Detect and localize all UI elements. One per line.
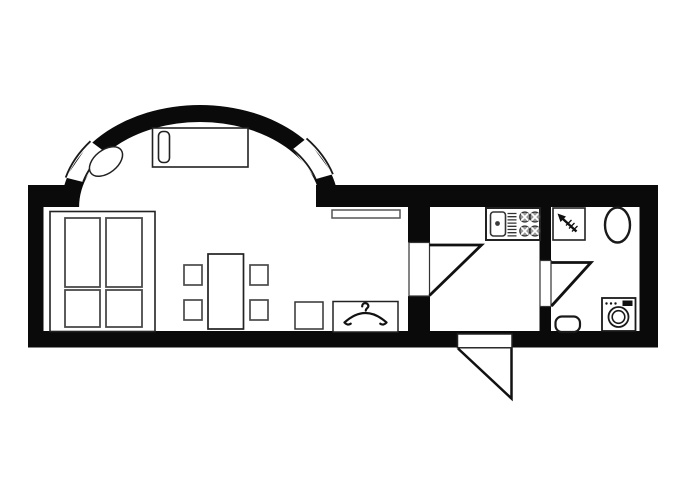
- basin: [556, 317, 581, 333]
- wardrobe-panel-bottom-right: [106, 290, 142, 327]
- chair-bottom-right: [250, 300, 268, 320]
- chair-top-right: [250, 265, 268, 285]
- wall-bath-partition-upper: [540, 205, 552, 261]
- toilet: [605, 208, 630, 243]
- wall-right: [640, 185, 659, 348]
- dining-table: [208, 254, 244, 329]
- wall-kitchen-partition-lower: [408, 296, 430, 332]
- entry-threshold: [458, 334, 513, 348]
- wardrobe-panel-bottom-left: [65, 290, 100, 327]
- floor-plan-drawing: [0, 0, 700, 500]
- wall-shelf: [332, 210, 400, 218]
- chair-top-left: [184, 265, 202, 285]
- sink-tap: [495, 221, 500, 226]
- kitchen-door-leaf: [430, 245, 482, 296]
- wardrobe-panel-top-right: [106, 218, 142, 287]
- wardrobe-panel-top-left: [65, 218, 100, 287]
- bath-door-leaf: [552, 263, 592, 307]
- wall-top-right: [316, 185, 658, 207]
- wall-kitchen-partition-upper: [408, 205, 430, 243]
- wall-top-left: [28, 185, 78, 207]
- washer-display: [623, 301, 633, 307]
- bath-door-panel: [540, 261, 551, 307]
- coat-closet: [333, 302, 398, 333]
- floor-plan-page: [0, 0, 700, 500]
- stool: [295, 302, 323, 329]
- kitchen-door-panel: [409, 243, 430, 297]
- chair-bottom-left: [184, 300, 202, 320]
- bay-sofa-cushion: [159, 132, 170, 163]
- wall-bottom: [28, 331, 658, 348]
- washer-drum-inner: [612, 311, 625, 324]
- entry-door-leaf: [458, 349, 512, 399]
- wall-left: [28, 185, 44, 348]
- wall-bath-partition-lower: [540, 307, 552, 332]
